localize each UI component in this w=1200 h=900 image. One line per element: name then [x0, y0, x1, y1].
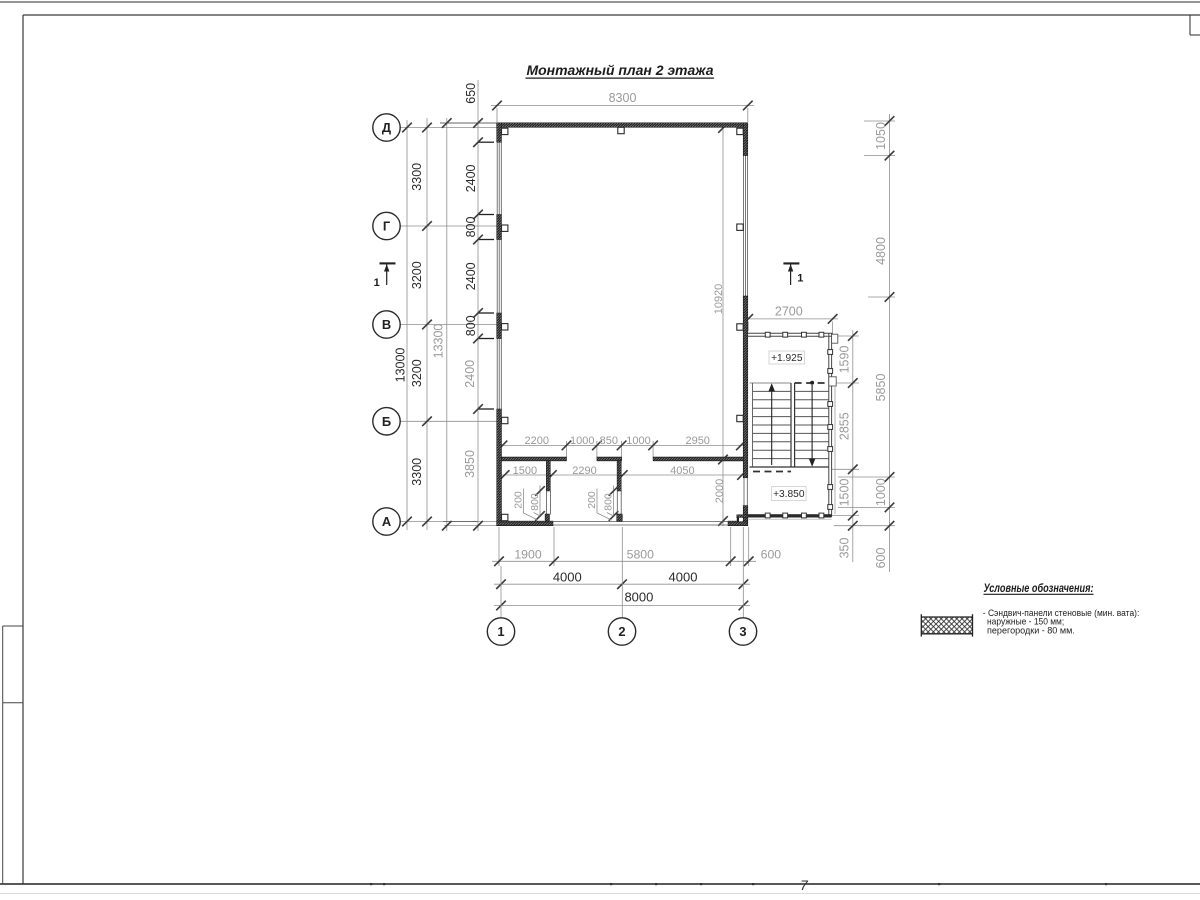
svg-text:200: 200 [586, 491, 598, 509]
svg-text:800: 800 [602, 493, 614, 511]
svg-text:4800: 4800 [874, 237, 888, 265]
svg-text:3200: 3200 [410, 261, 424, 289]
svg-text:3850: 3850 [463, 450, 477, 478]
svg-text:2700: 2700 [775, 304, 803, 318]
svg-text:2950: 2950 [685, 435, 709, 447]
svg-text:1050: 1050 [874, 122, 888, 150]
svg-text:+1.925: +1.925 [771, 353, 803, 364]
svg-text:4000: 4000 [669, 569, 698, 584]
svg-text:1000: 1000 [626, 435, 650, 447]
svg-text:200: 200 [512, 491, 524, 509]
svg-text:В: В [382, 317, 391, 332]
svg-text:Д: Д [382, 120, 391, 135]
svg-text:Монтажный план 2 этажа: Монтажный план 2 этажа [527, 63, 715, 78]
svg-text:1000: 1000 [874, 478, 888, 506]
svg-text:800: 800 [464, 315, 478, 336]
svg-text:3: 3 [739, 624, 746, 639]
svg-text:10920: 10920 [713, 284, 725, 315]
svg-text:4050: 4050 [670, 465, 694, 477]
svg-text:3300: 3300 [410, 458, 424, 486]
svg-text:800: 800 [529, 493, 541, 511]
svg-text:1: 1 [797, 273, 803, 285]
svg-text:8300: 8300 [609, 91, 637, 105]
svg-text:+3.850: +3.850 [773, 489, 805, 500]
svg-text:600: 600 [874, 548, 888, 569]
svg-text:2200: 2200 [525, 435, 549, 447]
svg-text:2: 2 [618, 624, 625, 639]
svg-text:2400: 2400 [464, 164, 478, 192]
svg-text:13300: 13300 [431, 324, 445, 359]
svg-text:800: 800 [464, 217, 478, 238]
svg-text:5800: 5800 [627, 547, 655, 561]
svg-text:1500: 1500 [838, 479, 852, 507]
svg-text:7: 7 [800, 877, 809, 893]
svg-text:2290: 2290 [572, 465, 596, 477]
svg-text:350: 350 [838, 538, 852, 559]
svg-text:650: 650 [464, 83, 478, 104]
svg-text:2400: 2400 [463, 360, 477, 388]
svg-text:1: 1 [497, 624, 504, 639]
svg-text:2000: 2000 [714, 479, 726, 503]
svg-text:1000: 1000 [570, 435, 594, 447]
svg-text:2855: 2855 [838, 412, 852, 440]
svg-text:Условные обозначения:: Условные обозначения: [984, 581, 1094, 595]
svg-text:3200: 3200 [410, 359, 424, 387]
svg-text:перегородки - 80 мм.: перегородки - 80 мм. [987, 626, 1075, 636]
svg-text:1900: 1900 [514, 547, 542, 561]
svg-text:13000: 13000 [394, 348, 408, 383]
svg-text:8000: 8000 [624, 590, 653, 605]
svg-text:1500: 1500 [513, 465, 537, 477]
svg-text:5850: 5850 [874, 374, 888, 402]
svg-text:Б: Б [382, 414, 391, 429]
svg-text:600: 600 [761, 547, 782, 561]
svg-text:2400: 2400 [464, 262, 478, 290]
svg-text:3300: 3300 [410, 163, 424, 191]
svg-text:А: А [382, 514, 391, 529]
svg-text:4000: 4000 [553, 569, 582, 584]
svg-text:850: 850 [600, 435, 618, 447]
svg-text:1: 1 [374, 277, 380, 289]
svg-text:Г: Г [383, 219, 391, 234]
svg-text:1590: 1590 [838, 346, 852, 374]
